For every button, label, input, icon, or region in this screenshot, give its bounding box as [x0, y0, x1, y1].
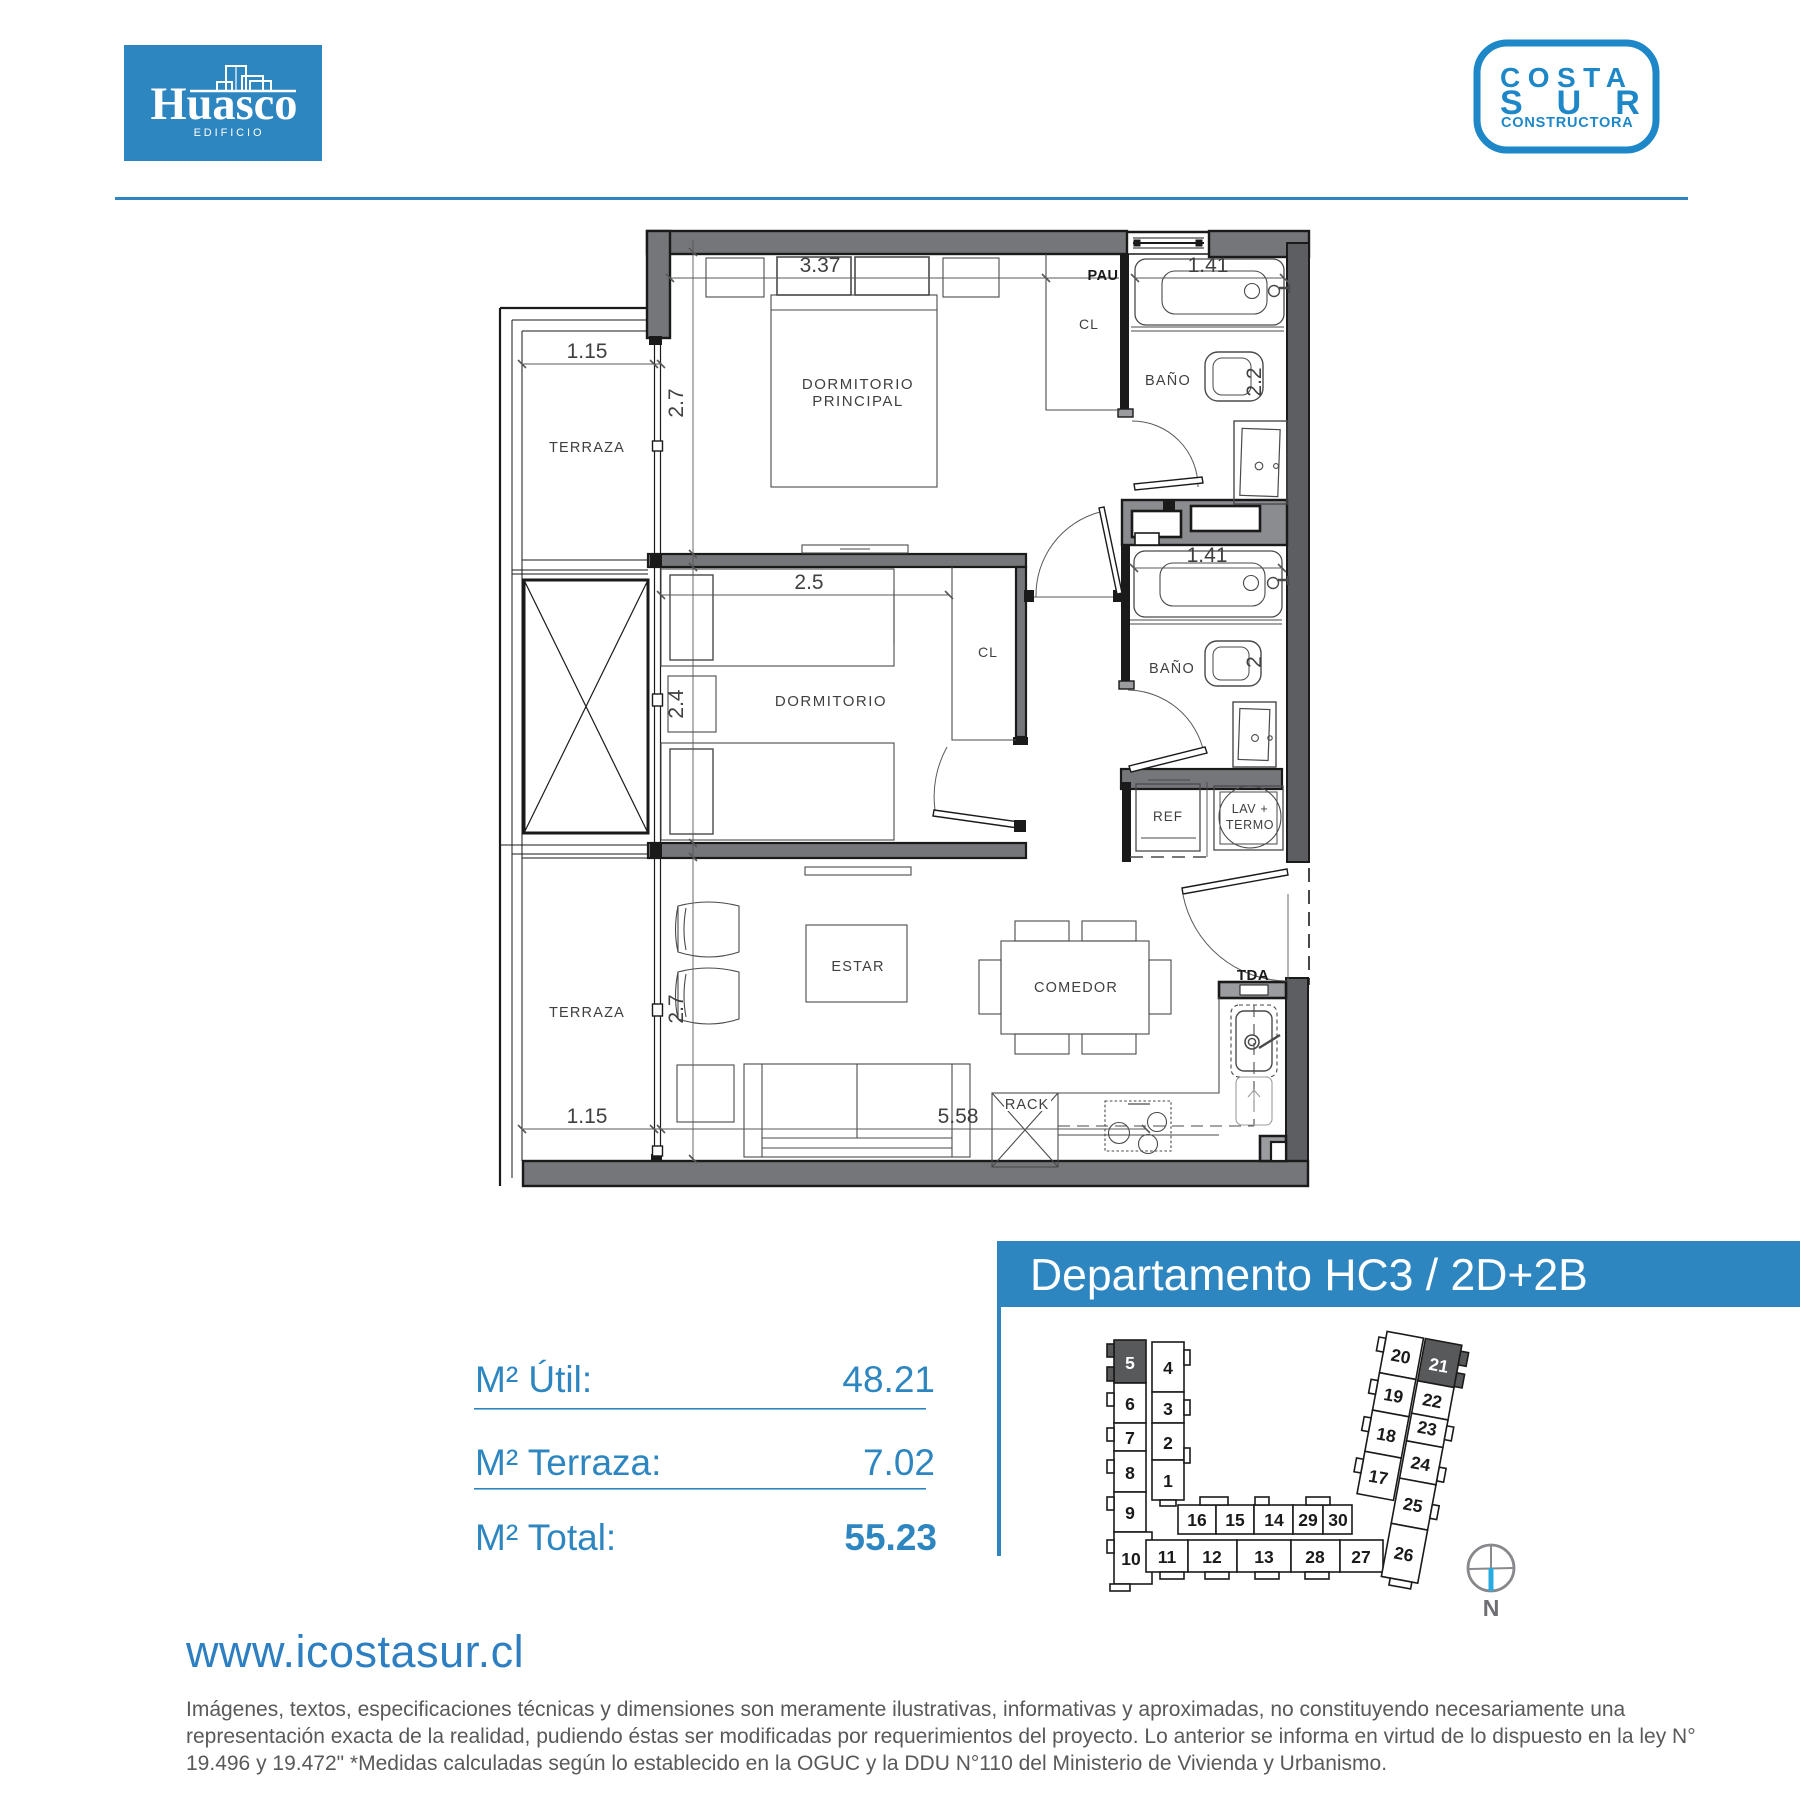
svg-text:5: 5 [1125, 1353, 1135, 1373]
svg-text:7.02: 7.02 [863, 1442, 935, 1483]
svg-text:Departamento HC3 / 2D+2B: Departamento HC3 / 2D+2B [1030, 1251, 1588, 1300]
svg-text:8: 8 [1125, 1463, 1135, 1483]
svg-text:16: 16 [1187, 1510, 1207, 1530]
svg-text:3.37: 3.37 [800, 254, 841, 277]
svg-text:30: 30 [1328, 1510, 1348, 1530]
svg-text:5.58: 5.58 [938, 1105, 979, 1128]
svg-text:ESTAR: ESTAR [831, 959, 884, 975]
svg-text:2.2: 2.2 [1243, 367, 1266, 396]
svg-text:2.7: 2.7 [665, 994, 688, 1023]
svg-text:LAV +: LAV + [1232, 802, 1268, 816]
svg-text:24: 24 [1409, 1452, 1432, 1475]
svg-text:REF: REF [1153, 809, 1183, 824]
svg-text:CL: CL [1079, 316, 1099, 332]
svg-text:EDIFICIO: EDIFICIO [194, 127, 265, 139]
svg-text:19.496 y 19.472" *Medidas calc: 19.496 y 19.472" *Medidas calculadas seg… [186, 1752, 1387, 1775]
svg-text:19: 19 [1382, 1384, 1405, 1407]
svg-text:PAU: PAU [1087, 268, 1118, 284]
svg-text:10: 10 [1121, 1549, 1141, 1569]
svg-text:Imágenes, textos, especificaci: Imágenes, textos, especificaciones técni… [186, 1698, 1626, 1721]
svg-text:2.5: 2.5 [794, 571, 823, 594]
svg-text:22: 22 [1421, 1389, 1444, 1412]
svg-text:14: 14 [1264, 1510, 1284, 1530]
svg-text:11: 11 [1158, 1547, 1177, 1567]
svg-text:RACK: RACK [1005, 1097, 1049, 1113]
svg-text:CONSTRUCTORA: CONSTRUCTORA [1501, 115, 1634, 131]
svg-text:2.4: 2.4 [665, 689, 688, 719]
svg-text:BAÑO: BAÑO [1149, 660, 1195, 677]
svg-text:3: 3 [1163, 1399, 1173, 1419]
svg-text:27: 27 [1351, 1547, 1370, 1567]
svg-text:1.41: 1.41 [1188, 254, 1229, 277]
svg-text:representación exacta de la re: representación exacta de la realidad, pu… [186, 1725, 1696, 1748]
svg-text:TERRAZA: TERRAZA [549, 1005, 625, 1021]
svg-text:9: 9 [1125, 1503, 1135, 1523]
svg-text:55.23: 55.23 [844, 1517, 937, 1558]
svg-text:28: 28 [1305, 1547, 1325, 1567]
svg-text:1.15: 1.15 [567, 340, 608, 363]
svg-text:21: 21 [1427, 1354, 1450, 1377]
svg-text:DORMITORIO: DORMITORIO [775, 693, 887, 710]
svg-text:18: 18 [1375, 1423, 1398, 1446]
svg-text:PRINCIPAL: PRINCIPAL [812, 393, 904, 410]
svg-text:Huasco: Huasco [151, 78, 298, 130]
svg-text:CL: CL [978, 644, 998, 660]
svg-text:M² Útil:: M² Útil: [475, 1359, 592, 1400]
svg-text:1.15: 1.15 [567, 1105, 608, 1128]
svg-text:25: 25 [1402, 1493, 1425, 1516]
svg-text:23: 23 [1416, 1417, 1439, 1440]
svg-text:TERMO: TERMO [1226, 818, 1274, 832]
svg-text:7: 7 [1125, 1428, 1135, 1448]
svg-text:BAÑO: BAÑO [1145, 372, 1191, 389]
svg-text:20: 20 [1389, 1345, 1412, 1368]
svg-text:2: 2 [1163, 1433, 1173, 1453]
svg-text:2.7: 2.7 [665, 388, 688, 417]
svg-text:M² Terraza:: M² Terraza: [475, 1442, 661, 1483]
svg-text:TDA: TDA [1237, 967, 1269, 984]
svg-text:26: 26 [1392, 1543, 1415, 1566]
svg-text:29: 29 [1298, 1510, 1318, 1530]
svg-text:1.41: 1.41 [1187, 544, 1228, 567]
svg-text:2: 2 [1243, 656, 1266, 668]
svg-text:M² Total:: M² Total: [475, 1517, 616, 1558]
svg-text:TERRAZA: TERRAZA [549, 440, 625, 456]
svg-text:COMEDOR: COMEDOR [1034, 980, 1118, 996]
svg-text:DORMITORIO: DORMITORIO [802, 376, 914, 393]
svg-text:N: N [1483, 1595, 1500, 1621]
svg-text:www.icostasur.cl: www.icostasur.cl [185, 1626, 524, 1677]
svg-text:12: 12 [1202, 1547, 1222, 1567]
svg-text:17: 17 [1367, 1466, 1390, 1489]
svg-text:1: 1 [1163, 1471, 1173, 1491]
svg-text:4: 4 [1163, 1358, 1173, 1378]
svg-text:15: 15 [1225, 1510, 1245, 1530]
svg-text:13: 13 [1254, 1547, 1274, 1567]
svg-text:48.21: 48.21 [842, 1359, 935, 1400]
svg-text:6: 6 [1125, 1394, 1135, 1414]
